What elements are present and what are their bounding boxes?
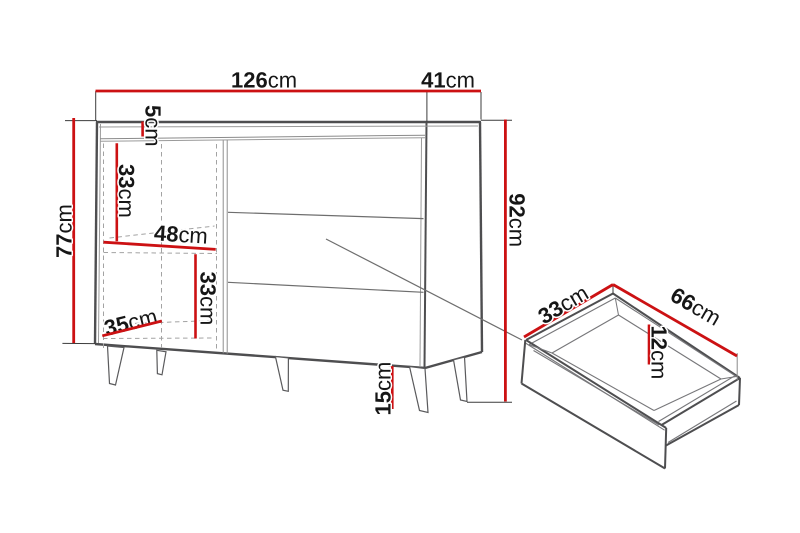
svg-text:126cm: 126cm: [231, 68, 297, 93]
svg-text:92cm: 92cm: [504, 193, 529, 247]
svg-text:77cm: 77cm: [52, 204, 77, 258]
svg-text:33cm: 33cm: [195, 272, 220, 326]
svg-text:12cm: 12cm: [647, 326, 672, 380]
svg-text:41cm: 41cm: [421, 68, 475, 93]
svg-text:48cm: 48cm: [153, 220, 208, 248]
svg-text:15cm: 15cm: [370, 362, 395, 416]
svg-text:5cm: 5cm: [141, 105, 166, 147]
svg-text:33cm: 33cm: [114, 164, 139, 218]
